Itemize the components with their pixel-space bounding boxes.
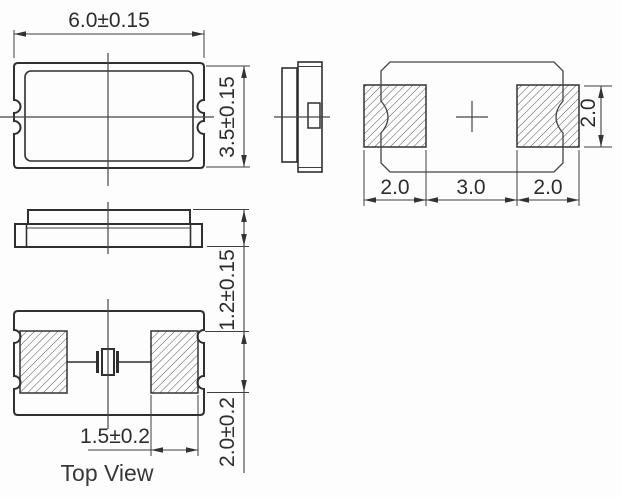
package-lid	[28, 210, 190, 224]
dimension-label-land-pad-height: 2.0	[577, 98, 600, 127]
dimension-body-width: 6.0±0.15	[14, 9, 204, 58]
dimension-label-land-gap: 3.0	[456, 176, 485, 199]
dimension-label-pad-width: 1.5±0.2	[80, 425, 150, 448]
plan-view: 6.0±0.15 3.5±0.15	[0, 9, 250, 186]
hatched-electrode-right	[151, 331, 198, 393]
end-view	[274, 62, 330, 172]
hatched-land-pad-left	[364, 85, 426, 147]
lid-profile	[282, 68, 297, 162]
crystal-symbol	[67, 349, 151, 375]
dimension-label-land-pad-left: 2.0	[380, 176, 409, 199]
dimension-land-pad-height: 2.0	[577, 86, 612, 147]
hatched-electrode-left	[20, 331, 67, 393]
side-view: 1.2±0.15	[15, 202, 249, 334]
dimension-label-pad-height: 2.0±0.2	[216, 397, 239, 467]
land-pattern-view: 2.0 3.0 2.0 2.0	[364, 62, 612, 206]
dimension-pad-height: 2.0±0.2	[205, 332, 249, 474]
center-cross	[456, 101, 488, 132]
hatched-land-pad-right	[517, 85, 579, 147]
castellation-electrode	[308, 103, 320, 128]
technical-drawing-page: 6.0±0.15 3.5±0.15 1.2±0.15	[0, 0, 621, 497]
view-caption: Top View	[61, 460, 154, 486]
dimension-label-land-pad-right: 2.0	[533, 176, 562, 199]
dimension-label-body-height: 3.5±0.15	[216, 76, 239, 158]
dimension-land-horizontal: 2.0 3.0 2.0	[364, 150, 579, 206]
dimension-label-body-thickness: 1.2±0.15	[216, 249, 239, 331]
body-outline	[14, 63, 204, 168]
dimension-label-body-width: 6.0±0.15	[68, 9, 150, 32]
body-inner-outline	[25, 71, 193, 161]
technical-drawing: 6.0±0.15 3.5±0.15 1.2±0.15	[0, 0, 621, 497]
bottom-view: 1.5±0.2 2.0±0.2 Top View	[14, 299, 249, 486]
dimension-pad-width: 1.5±0.2	[80, 395, 198, 456]
